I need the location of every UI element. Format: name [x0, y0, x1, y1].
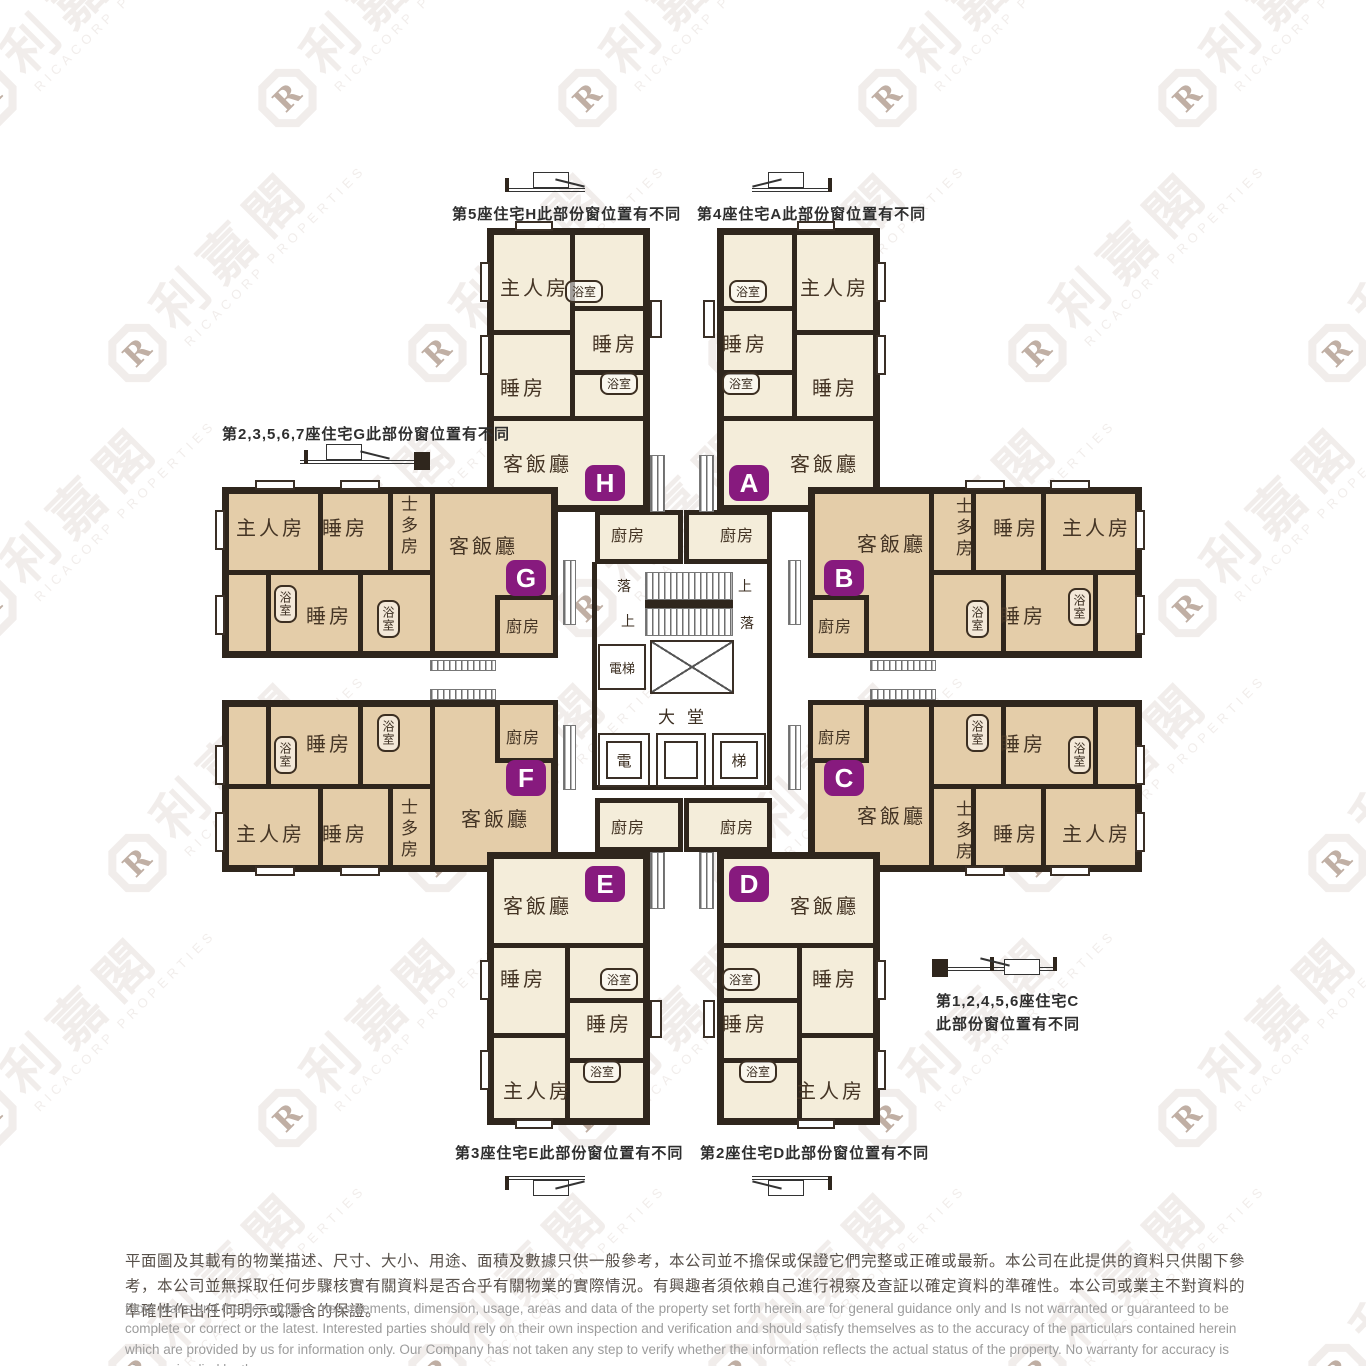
lobby-label: 大堂	[658, 703, 716, 728]
ricacorp-logo-icon: R	[246, 57, 328, 139]
watermark-cn-text: 利嘉閣	[1342, 632, 1366, 849]
watermark: R利嘉閣RICACORP PROPERTIES	[992, 122, 1268, 398]
watermark: R利嘉閣RICACORP PROPERTIES	[1142, 887, 1366, 1163]
interior-wall	[358, 570, 363, 658]
interior-wall	[717, 416, 880, 421]
hatch-strip	[563, 560, 576, 625]
room-label-bedroom: 睡房	[322, 818, 368, 847]
room-label-living-dining: 客飯廳	[790, 448, 859, 477]
hatch-strip	[563, 725, 576, 790]
watermark: R利嘉閣RICACORP PROPERTIES	[1142, 0, 1366, 143]
room-label-bedroom: 睡房	[993, 512, 1039, 541]
interior-wall	[929, 487, 934, 658]
watermark-cn-text: 利嘉閣	[292, 887, 509, 1104]
room-label-kitchen: 廚房	[818, 613, 852, 637]
bathroom-pill: 浴室	[600, 372, 638, 395]
room-label-master-bedroom: 主人房	[500, 272, 569, 301]
interior-wall	[932, 784, 1142, 789]
room-label-master-bedroom: 主人房	[800, 272, 869, 301]
watermark: R利嘉閣RICACORP PROPERTIES	[1292, 632, 1366, 908]
lift-car-inner: 電	[606, 741, 642, 779]
lift-car: 梯	[712, 733, 766, 787]
window	[1050, 866, 1090, 876]
window	[1050, 480, 1090, 490]
diagram-tick	[828, 178, 832, 192]
interior-wall	[1041, 487, 1046, 575]
window	[215, 510, 225, 550]
window	[215, 745, 225, 785]
interior-wall	[1041, 784, 1046, 872]
interior-wall	[800, 1033, 880, 1038]
annotation-unit-g: 第2,3,5,6,7座住宅G此部份窗位置有不同	[222, 423, 510, 444]
staircase	[645, 608, 733, 636]
stair-label-up: 上	[738, 576, 752, 596]
room-label-living-dining: 客飯廳	[503, 448, 572, 477]
hatch-strip	[870, 660, 936, 671]
watermark-en-text: RICACORP PROPERTIES	[1082, 162, 1269, 349]
diagram-tick	[1053, 957, 1057, 971]
window	[215, 812, 225, 852]
annotation-unit-c-line2: 此部份窗位置有不同	[936, 1013, 1080, 1034]
room-label-kitchen: 廚房	[611, 522, 645, 546]
diagram-line	[300, 460, 430, 464]
watermark-cn-text: 利嘉閣	[142, 122, 359, 339]
room-label-master-bedroom: 主人房	[236, 512, 305, 541]
diagram-line	[948, 967, 1057, 971]
lift-char-right: 梯	[731, 750, 746, 771]
annotation-unit-h: 第5座住宅H此部份窗位置有不同	[452, 203, 681, 224]
window	[650, 300, 662, 338]
lift-box: 電梯	[598, 644, 646, 690]
interior-wall	[1093, 700, 1098, 788]
room-label-living-dining: 客飯廳	[461, 803, 530, 832]
lift-car-inner	[664, 741, 698, 779]
watermark-en-text: RICACORP PROPERTIES	[932, 0, 1119, 94]
diagram-wall-block	[414, 452, 430, 470]
watermark-cn-text: 利嘉閣	[1042, 122, 1259, 339]
hatch-strip	[650, 852, 665, 909]
room-label-bedroom: 睡房	[306, 728, 352, 757]
room-label-bedroom: 睡房	[500, 963, 546, 992]
watermark-en-text: RICACORP PROPERTIES	[1232, 927, 1366, 1114]
interior-wall	[388, 784, 393, 872]
diagram-line	[505, 188, 585, 192]
window	[703, 1000, 715, 1038]
watermark-en-text: RICACORP PROPERTIES	[1232, 417, 1366, 604]
watermark-en-text: RICACORP PROPERTIES	[32, 417, 219, 604]
watermark: R利嘉閣RICACORP PROPERTIES	[1292, 1142, 1366, 1366]
room-label-living-dining: 客飯廳	[790, 890, 859, 919]
room-label-kitchen: 廚房	[720, 522, 754, 546]
window	[1135, 595, 1145, 635]
room-label-living-dining: 客飯廳	[857, 528, 926, 557]
watermark-en-text: RICACORP PROPERTIES	[32, 927, 219, 1114]
room-label-storeroom: 士多房	[950, 497, 975, 560]
room-label-master-bedroom: 主人房	[236, 818, 305, 847]
ricacorp-logo-icon: R	[0, 1077, 28, 1159]
room-label-master-bedroom: 主人房	[796, 1075, 865, 1104]
room-label-living-dining: 客飯廳	[449, 530, 518, 559]
stair-landing	[645, 600, 733, 608]
room-label-living-dining: 客飯廳	[503, 890, 572, 919]
diagram-window	[326, 444, 362, 460]
lift-char-left: 電	[616, 750, 631, 771]
hatch-strip	[788, 725, 801, 790]
room-label-master-bedroom: 主人房	[503, 1075, 572, 1104]
window	[515, 1119, 553, 1129]
interior-wall	[570, 228, 575, 418]
staircase	[645, 572, 733, 600]
watermark: R利嘉閣RICACORP PROPERTIES	[242, 887, 518, 1163]
room-label-bedroom: 睡房	[586, 1008, 632, 1037]
ricacorp-logo-icon: R	[846, 57, 928, 139]
lift-car: 電	[598, 733, 650, 787]
ricacorp-logo-icon: R	[546, 57, 628, 139]
window	[1135, 745, 1145, 785]
annotation-unit-d: 第2座住宅D此部份窗位置有不同	[700, 1142, 929, 1163]
watermark: R利嘉閣RICACORP PROPERTIES	[0, 377, 218, 653]
room-label-bedroom: 睡房	[722, 1008, 768, 1037]
stair-label-up: 上	[621, 611, 635, 631]
interior-wall	[430, 487, 435, 658]
diagram-window	[533, 1180, 569, 1196]
diagram-wall-block	[932, 959, 948, 977]
diagram-tick	[505, 178, 509, 192]
room-label-bedroom: 睡房	[592, 328, 638, 357]
unit-c-badge: C	[824, 760, 864, 796]
diagram-window	[768, 1180, 804, 1196]
window	[876, 335, 886, 375]
diagram-tick	[828, 1176, 832, 1190]
room-label-storeroom: 士多房	[950, 800, 975, 863]
hatch-strip	[699, 852, 714, 909]
bathroom-pill: 浴室	[274, 736, 297, 774]
unit-f-badge: F	[506, 760, 546, 796]
bathroom-pill: 浴室	[722, 372, 760, 395]
interior-wall	[487, 1033, 567, 1038]
hatch-strip	[788, 560, 801, 625]
room-label-bedroom: 睡房	[500, 372, 546, 401]
window	[480, 960, 490, 1000]
interior-wall	[795, 330, 880, 335]
ricacorp-logo-icon: R	[1296, 822, 1366, 904]
unit-g-badge: G	[506, 560, 546, 596]
window	[876, 1050, 886, 1090]
interior-wall	[266, 700, 271, 788]
bathroom-pill: 浴室	[377, 600, 400, 638]
interior-wall	[1093, 570, 1098, 658]
hatch-strip	[430, 660, 496, 671]
room-label-storeroom: 士多房	[395, 798, 420, 861]
watermark: R利嘉閣RICACORP PROPERTIES	[242, 0, 518, 143]
interior-wall	[388, 487, 393, 575]
room-label-kitchen: 廚房	[720, 814, 754, 838]
watermark: R利嘉閣RICACORP PROPERTIES	[1142, 377, 1366, 653]
core-wall	[767, 562, 772, 790]
ricacorp-logo-icon: R	[246, 1077, 328, 1159]
interior-wall	[717, 998, 802, 1003]
room-label-bedroom: 睡房	[306, 600, 352, 629]
bathroom-pill: 浴室	[1068, 588, 1091, 626]
disclaimer-english: Floor plans and the description, measure…	[125, 1299, 1245, 1366]
watermark-cn-text: 利嘉閣	[0, 887, 209, 1104]
window	[340, 480, 380, 490]
bathroom-pill: 浴室	[729, 280, 767, 303]
window	[480, 335, 490, 375]
bathroom-pill: 浴室	[966, 600, 989, 638]
window	[480, 262, 490, 302]
window	[1135, 510, 1145, 550]
room-label-bedroom: 睡房	[812, 963, 858, 992]
interior-wall	[358, 700, 363, 788]
window	[1135, 812, 1145, 852]
window-detail-diagram	[932, 955, 1057, 981]
room-label-kitchen: 廚房	[818, 724, 852, 748]
watermark: R利嘉閣RICACORP PROPERTIES	[542, 0, 818, 143]
bathroom-pill: 浴室	[1068, 736, 1091, 774]
stair-label-down: 落	[740, 613, 754, 633]
watermark: R利嘉閣RICACORP PROPERTIES	[0, 0, 218, 143]
watermark-cn-text: 利嘉閣	[1192, 377, 1366, 594]
bathroom-pill: 浴室	[600, 968, 638, 991]
window	[255, 866, 295, 876]
interior-wall	[792, 228, 797, 418]
window	[797, 1119, 835, 1129]
room-label-living-dining: 客飯廳	[857, 800, 926, 829]
watermark: R利嘉閣RICACORP PROPERTIES	[92, 122, 368, 398]
ricacorp-logo-icon: R	[1146, 567, 1228, 649]
ricacorp-logo-icon: R	[996, 312, 1078, 394]
watermark-cn-text: 利嘉閣	[0, 0, 209, 84]
unit-e-badge: E	[585, 866, 625, 902]
diagram-tick	[304, 450, 308, 464]
stair-label-down: 落	[617, 576, 631, 596]
room-label-bedroom: 睡房	[812, 372, 858, 401]
window-detail-diagram	[752, 1166, 832, 1192]
lift-car-inner: 梯	[720, 741, 758, 779]
room-label-bedroom: 睡房	[322, 512, 368, 541]
ricacorp-logo-icon: R	[0, 567, 28, 649]
window	[215, 595, 225, 635]
lift-label: 電梯	[609, 658, 635, 677]
interior-wall	[565, 998, 650, 1003]
diagram-line	[752, 188, 832, 192]
hatch-strip	[870, 689, 936, 700]
ricacorp-logo-icon: R	[96, 312, 178, 394]
room-label-master-bedroom: 主人房	[1062, 818, 1131, 847]
ricacorp-logo-icon: R	[1146, 1077, 1228, 1159]
window-detail-diagram	[300, 448, 430, 474]
interior-wall	[929, 700, 934, 872]
window-detail-diagram	[505, 1166, 585, 1192]
watermark-en-text: RICACORP PROPERTIES	[1232, 0, 1366, 94]
ricacorp-logo-icon: R	[1296, 1332, 1366, 1366]
window	[480, 1050, 490, 1090]
ricacorp-logo-icon: R	[1146, 57, 1228, 139]
interior-wall	[430, 700, 435, 872]
watermark: R利嘉閣RICACORP PROPERTIES	[842, 0, 1118, 143]
hatch-strip	[650, 455, 665, 512]
bathroom-pill: 浴室	[739, 1060, 777, 1083]
watermark: R利嘉閣RICACORP PROPERTIES	[1292, 122, 1366, 398]
diagram-flap	[360, 450, 390, 459]
room-label-bedroom: 睡房	[1000, 728, 1046, 757]
watermark-cn-text: 利嘉閣	[592, 0, 809, 84]
bathroom-pill: 浴室	[565, 280, 603, 303]
unit-d-badge: D	[729, 866, 769, 902]
ricacorp-logo-icon: R	[96, 822, 178, 904]
room-label-bedroom: 睡房	[993, 818, 1039, 847]
annotation-unit-e: 第3座住宅E此部份窗位置有不同	[455, 1142, 683, 1163]
ricacorp-logo-icon: R	[396, 312, 478, 394]
watermark-cn-text: 利嘉閣	[0, 377, 209, 594]
watermark-en-text: RICACORP PROPERTIES	[182, 162, 369, 349]
unit-a-badge: A	[729, 465, 769, 501]
interior-wall	[570, 306, 650, 311]
core-wall	[592, 562, 597, 790]
watermark-cn-text: 利嘉閣	[1192, 0, 1366, 84]
ricacorp-logo-icon: R	[0, 57, 28, 139]
bathroom-pill: 浴室	[583, 1060, 621, 1083]
watermark-cn-text: 利嘉閣	[292, 0, 509, 84]
interior-wall	[222, 570, 432, 575]
window-detail-diagram	[505, 176, 585, 202]
window	[965, 480, 1005, 490]
watermark: R利嘉閣RICACORP PROPERTIES	[0, 887, 218, 1163]
room-label-bedroom: 睡房	[722, 328, 768, 357]
window-detail-diagram	[752, 176, 832, 202]
window	[703, 300, 715, 338]
room-label-storeroom: 士多房	[395, 495, 420, 558]
bathroom-pill: 浴室	[966, 714, 989, 752]
bathroom-pill: 浴室	[377, 714, 400, 752]
window	[650, 1000, 662, 1038]
floor-plan-page: R利嘉閣RICACORP PROPERTIESR利嘉閣RICACORP PROP…	[0, 0, 1366, 1366]
interior-wall	[932, 570, 1142, 575]
unit-h-badge: H	[585, 465, 625, 501]
diagram-window	[1004, 959, 1040, 975]
hatch-strip	[699, 455, 714, 512]
lift-car	[656, 733, 706, 787]
watermark-cn-text: 利嘉閣	[1342, 122, 1366, 339]
bathroom-pill: 浴室	[722, 968, 760, 991]
interior-wall	[717, 306, 797, 311]
hatch-strip	[430, 689, 496, 700]
annotation-unit-c-line1: 第1,2,4,5,6座住宅C	[936, 990, 1079, 1011]
diagram-tick	[505, 1176, 509, 1190]
room-label-kitchen: 廚房	[506, 613, 540, 637]
watermark-en-text: RICACORP PROPERTIES	[632, 0, 819, 94]
interior-wall	[222, 784, 432, 789]
room-label-master-bedroom: 主人房	[1062, 512, 1131, 541]
window	[965, 866, 1005, 876]
watermark-cn-text: 利嘉閣	[892, 0, 1109, 84]
bathroom-pill: 浴室	[274, 585, 297, 623]
interior-wall	[487, 330, 572, 335]
unit-b-badge: B	[824, 560, 864, 596]
window	[876, 960, 886, 1000]
window	[255, 480, 295, 490]
watermark-en-text: RICACORP PROPERTIES	[332, 0, 519, 94]
ricacorp-logo-icon: R	[1296, 312, 1366, 394]
interior-wall	[266, 570, 271, 658]
watermark-cn-text: 利嘉閣	[1342, 1142, 1366, 1359]
room-label-kitchen: 廚房	[611, 814, 645, 838]
window	[876, 262, 886, 302]
room-label-kitchen: 廚房	[506, 724, 540, 748]
annotation-unit-a: 第4座住宅A此部份窗位置有不同	[697, 203, 926, 224]
interior-wall	[487, 416, 650, 421]
room-label-bedroom: 睡房	[1000, 600, 1046, 629]
lift-shaft	[650, 640, 734, 694]
watermark-cn-text: 利嘉閣	[1192, 887, 1366, 1104]
window	[340, 866, 380, 876]
watermark-en-text: RICACORP PROPERTIES	[32, 0, 219, 94]
